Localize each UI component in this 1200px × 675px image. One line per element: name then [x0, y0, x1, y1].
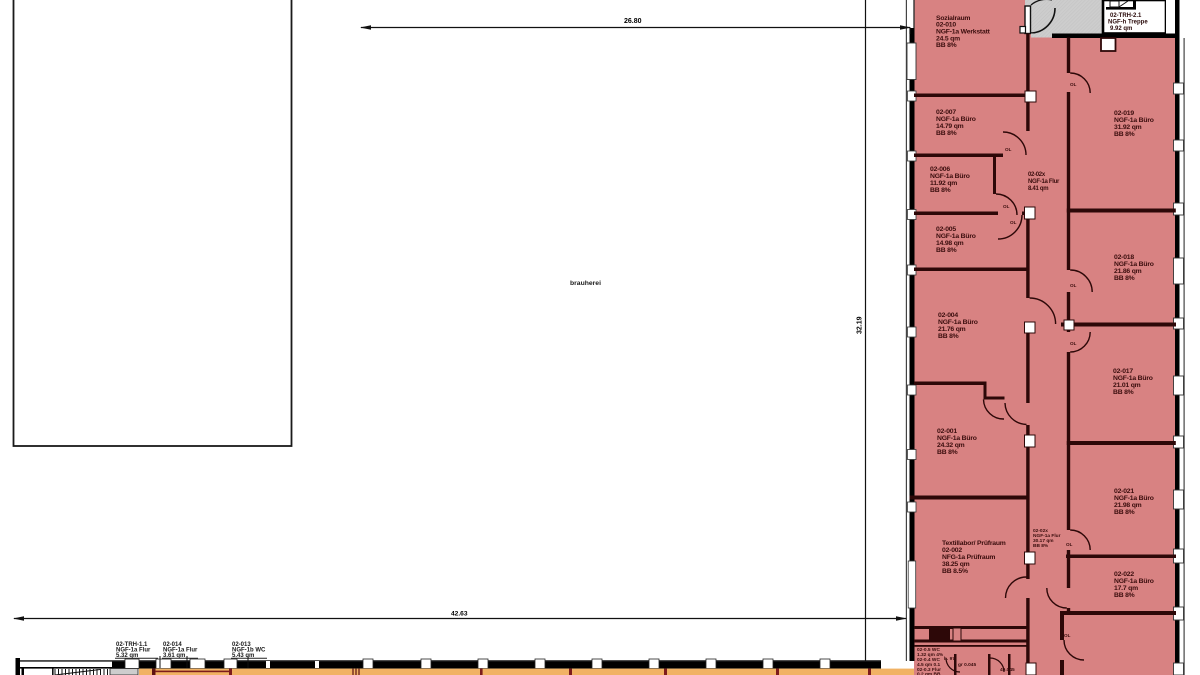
svg-text:49.045: 49.045 — [1000, 667, 1015, 673]
svg-text:BB 8%: BB 8% — [1033, 543, 1049, 549]
svg-text:0.2 qm BB: 0.2 qm BB — [917, 672, 941, 675]
svg-text:02-017: 02-017 — [1113, 368, 1133, 375]
svg-text:31.92 qm: 31.92 qm — [1114, 124, 1142, 131]
svg-text:NGF-1a Büro: NGF-1a Büro — [1113, 375, 1153, 382]
svg-text:b. 97: b. 97 — [944, 656, 955, 662]
svg-text:26.80: 26.80 — [624, 18, 642, 25]
svg-text:21.86 qm: 21.86 qm — [1114, 268, 1142, 275]
svg-text:17.7 qm: 17.7 qm — [1114, 585, 1138, 592]
svg-text:OL: OL — [1010, 220, 1017, 225]
svg-text:BB 8%: BB 8% — [1114, 131, 1135, 138]
svg-text:gr 0.045: gr 0.045 — [958, 662, 976, 668]
svg-text:NGF-1a Flur: NGF-1a Flur — [1028, 179, 1060, 185]
svg-text:8.41 qm: 8.41 qm — [1028, 186, 1048, 192]
svg-text:02-TRH-2.1: 02-TRH-2.1 — [1110, 13, 1142, 19]
svg-text:24.32 qm: 24.32 qm — [937, 442, 965, 449]
svg-text:02-018: 02-018 — [1114, 254, 1134, 261]
svg-text:OL: OL — [1003, 204, 1010, 209]
svg-text:02-010: 02-010 — [936, 22, 956, 29]
svg-text:Textillabor/ Prüfraum: Textillabor/ Prüfraum — [942, 540, 1006, 547]
svg-text:OL: OL — [1066, 542, 1073, 547]
svg-text:02-006: 02-006 — [930, 166, 950, 173]
svg-text:14.98 qm: 14.98 qm — [936, 240, 964, 247]
svg-text:02-02x: 02-02x — [1028, 172, 1046, 178]
svg-text:NFG-1a Prüfraum: NFG-1a Prüfraum — [942, 554, 995, 561]
svg-text:02-021: 02-021 — [1114, 488, 1134, 495]
svg-text:NGF-1a Büro: NGF-1a Büro — [1114, 495, 1154, 502]
svg-text:BB 8%: BB 8% — [937, 449, 958, 456]
svg-text:BB 8%: BB 8% — [1113, 389, 1134, 396]
svg-text:BB 8.5%: BB 8.5% — [942, 568, 968, 575]
svg-text:BB 8%: BB 8% — [1114, 275, 1135, 282]
svg-text:OL: OL — [1070, 283, 1077, 288]
svg-text:BB 8%: BB 8% — [930, 187, 951, 194]
svg-text:32.19: 32.19 — [857, 316, 864, 334]
svg-text:11.92 qm: 11.92 qm — [930, 180, 957, 187]
svg-text:BB 8%: BB 8% — [936, 247, 957, 254]
svg-text:NGF-1a Büro: NGF-1a Büro — [1114, 117, 1154, 124]
svg-text:OL: OL — [1005, 147, 1012, 152]
svg-text:OL: OL — [1064, 633, 1071, 638]
svg-text:brauherei: brauherei — [570, 280, 601, 287]
svg-text:NGF-1a Werkstatt: NGF-1a Werkstatt — [936, 29, 991, 36]
svg-text:NGF-1a Büro: NGF-1a Büro — [938, 319, 978, 326]
svg-text:14.79 qm: 14.79 qm — [936, 123, 964, 130]
svg-text:02-004: 02-004 — [938, 312, 958, 319]
svg-text:21.98 qm: 21.98 qm — [1114, 502, 1142, 509]
svg-text:02-007: 02-007 — [936, 109, 956, 116]
svg-text:02-005: 02-005 — [936, 226, 956, 233]
svg-text:02-022: 02-022 — [1114, 571, 1134, 578]
svg-text:NGF-1a Büro: NGF-1a Büro — [930, 173, 970, 180]
svg-text:NGF-h Treppe: NGF-h Treppe — [1108, 20, 1148, 26]
svg-text:OL: OL — [1070, 82, 1077, 87]
svg-text:BB 8%: BB 8% — [938, 333, 959, 340]
svg-text:02-002: 02-002 — [942, 547, 962, 554]
svg-text:NGF-1a Büro: NGF-1a Büro — [1114, 261, 1154, 268]
svg-text:BB 8%: BB 8% — [1114, 592, 1135, 599]
svg-text:21.76 qm: 21.76 qm — [938, 326, 966, 333]
svg-text:02-001: 02-001 — [937, 428, 957, 435]
svg-text:BB 8%: BB 8% — [1114, 509, 1135, 516]
svg-text:NGF-1a Büro: NGF-1a Büro — [936, 116, 976, 123]
svg-text:NGF-1a Büro: NGF-1a Büro — [936, 233, 976, 240]
svg-text:9.92 qm: 9.92 qm — [1110, 26, 1132, 32]
svg-text:21.01 qm: 21.01 qm — [1113, 382, 1141, 389]
svg-text:BB 8%: BB 8% — [936, 42, 957, 49]
svg-text:NGF-1a Büro: NGF-1a Büro — [1114, 578, 1154, 585]
svg-text:NGF-1a Büro: NGF-1a Büro — [937, 435, 977, 442]
svg-text:OL: OL — [1070, 341, 1077, 346]
svg-text:02-019: 02-019 — [1114, 110, 1134, 117]
svg-text:38.25 qm: 38.25 qm — [942, 561, 970, 568]
svg-text:BB 8%: BB 8% — [936, 130, 957, 137]
svg-text:42.63: 42.63 — [451, 611, 468, 618]
